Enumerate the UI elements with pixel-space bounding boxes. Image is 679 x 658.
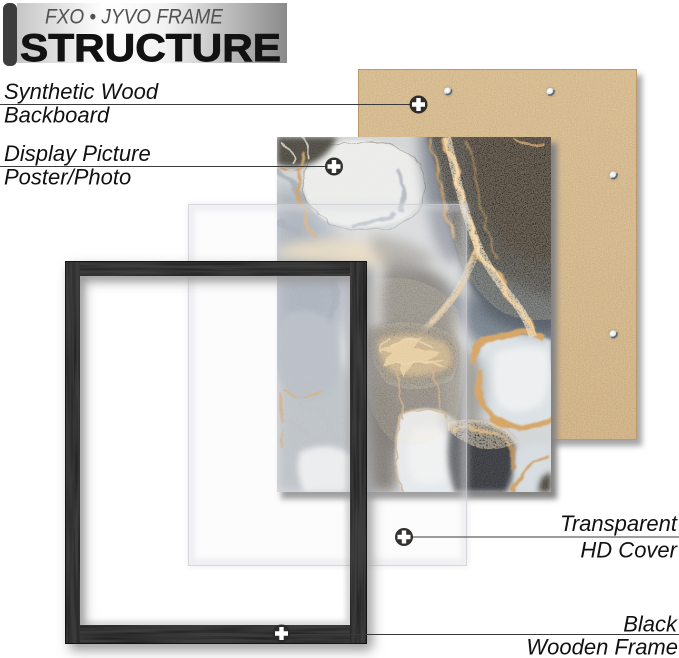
svg-text:Transparent: Transparent — [560, 511, 678, 536]
svg-text:Display Picture: Display Picture — [4, 141, 151, 166]
svg-text:STRUCTURE: STRUCTURE — [20, 27, 281, 70]
svg-text:Wooden Frame: Wooden Frame — [526, 635, 678, 658]
svg-text:HD Cover: HD Cover — [580, 538, 678, 563]
svg-text:Black: Black — [623, 612, 678, 637]
svg-text:Backboard: Backboard — [4, 103, 110, 128]
svg-text:Poster/Photo: Poster/Photo — [4, 165, 131, 190]
svg-text:FXO • JYVO FRAME: FXO • JYVO FRAME — [45, 6, 224, 29]
svg-text:Synthetic Wood: Synthetic Wood — [4, 79, 159, 104]
